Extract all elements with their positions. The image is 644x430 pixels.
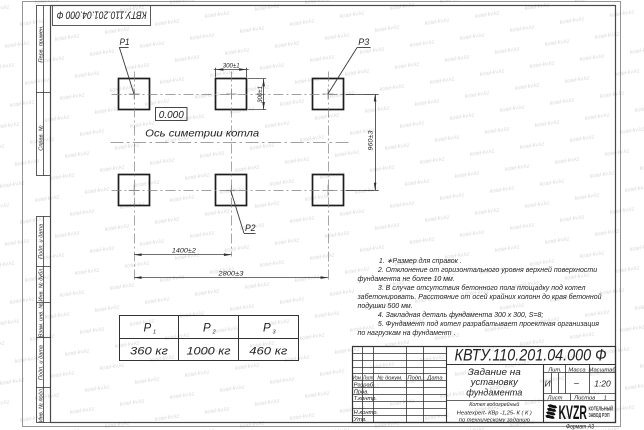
svg-text:Подп. и дата: Подп. и дата: [39, 345, 45, 380]
svg-text:1: 1: [604, 395, 607, 401]
svg-text:Перв. примен.: Перв. примен.: [39, 25, 45, 62]
svg-text:Инв. № дубл.: Инв. № дубл.: [39, 267, 45, 301]
svg-text:Масса: Масса: [568, 367, 586, 373]
svg-text:P1: P1: [120, 36, 130, 47]
svg-text:–: –: [573, 378, 579, 388]
svg-text:1:20: 1:20: [594, 379, 611, 389]
svg-text:Утв.: Утв.: [353, 417, 367, 423]
svg-text:ЗАВОД РЭП: ЗАВОД РЭП: [589, 413, 610, 419]
svg-text:Изм.: Изм.: [353, 375, 362, 381]
svg-text:Формат А3: Формат А3: [566, 423, 594, 430]
svg-text:300±1: 300±1: [223, 62, 240, 69]
svg-text:Подп. и дата: Подп. и дата: [39, 224, 45, 259]
svg-text:Ось симетрии котла: Ось симетрии котла: [145, 127, 259, 139]
svg-text:Лит.: Лит.: [547, 367, 562, 373]
svg-text:P3: P3: [358, 36, 370, 47]
svg-text:Взам. инв. №: Взам. инв. №: [39, 303, 45, 338]
svg-text:№ докум.: № докум.: [377, 375, 403, 381]
svg-text:Heatexpert- КВр -1,25- К ( К ): Heatexpert- КВр -1,25- К ( К ): [457, 410, 532, 416]
svg-text:Т.контр.: Т.контр.: [354, 396, 377, 402]
svg-text:Лист: Лист: [362, 375, 373, 381]
